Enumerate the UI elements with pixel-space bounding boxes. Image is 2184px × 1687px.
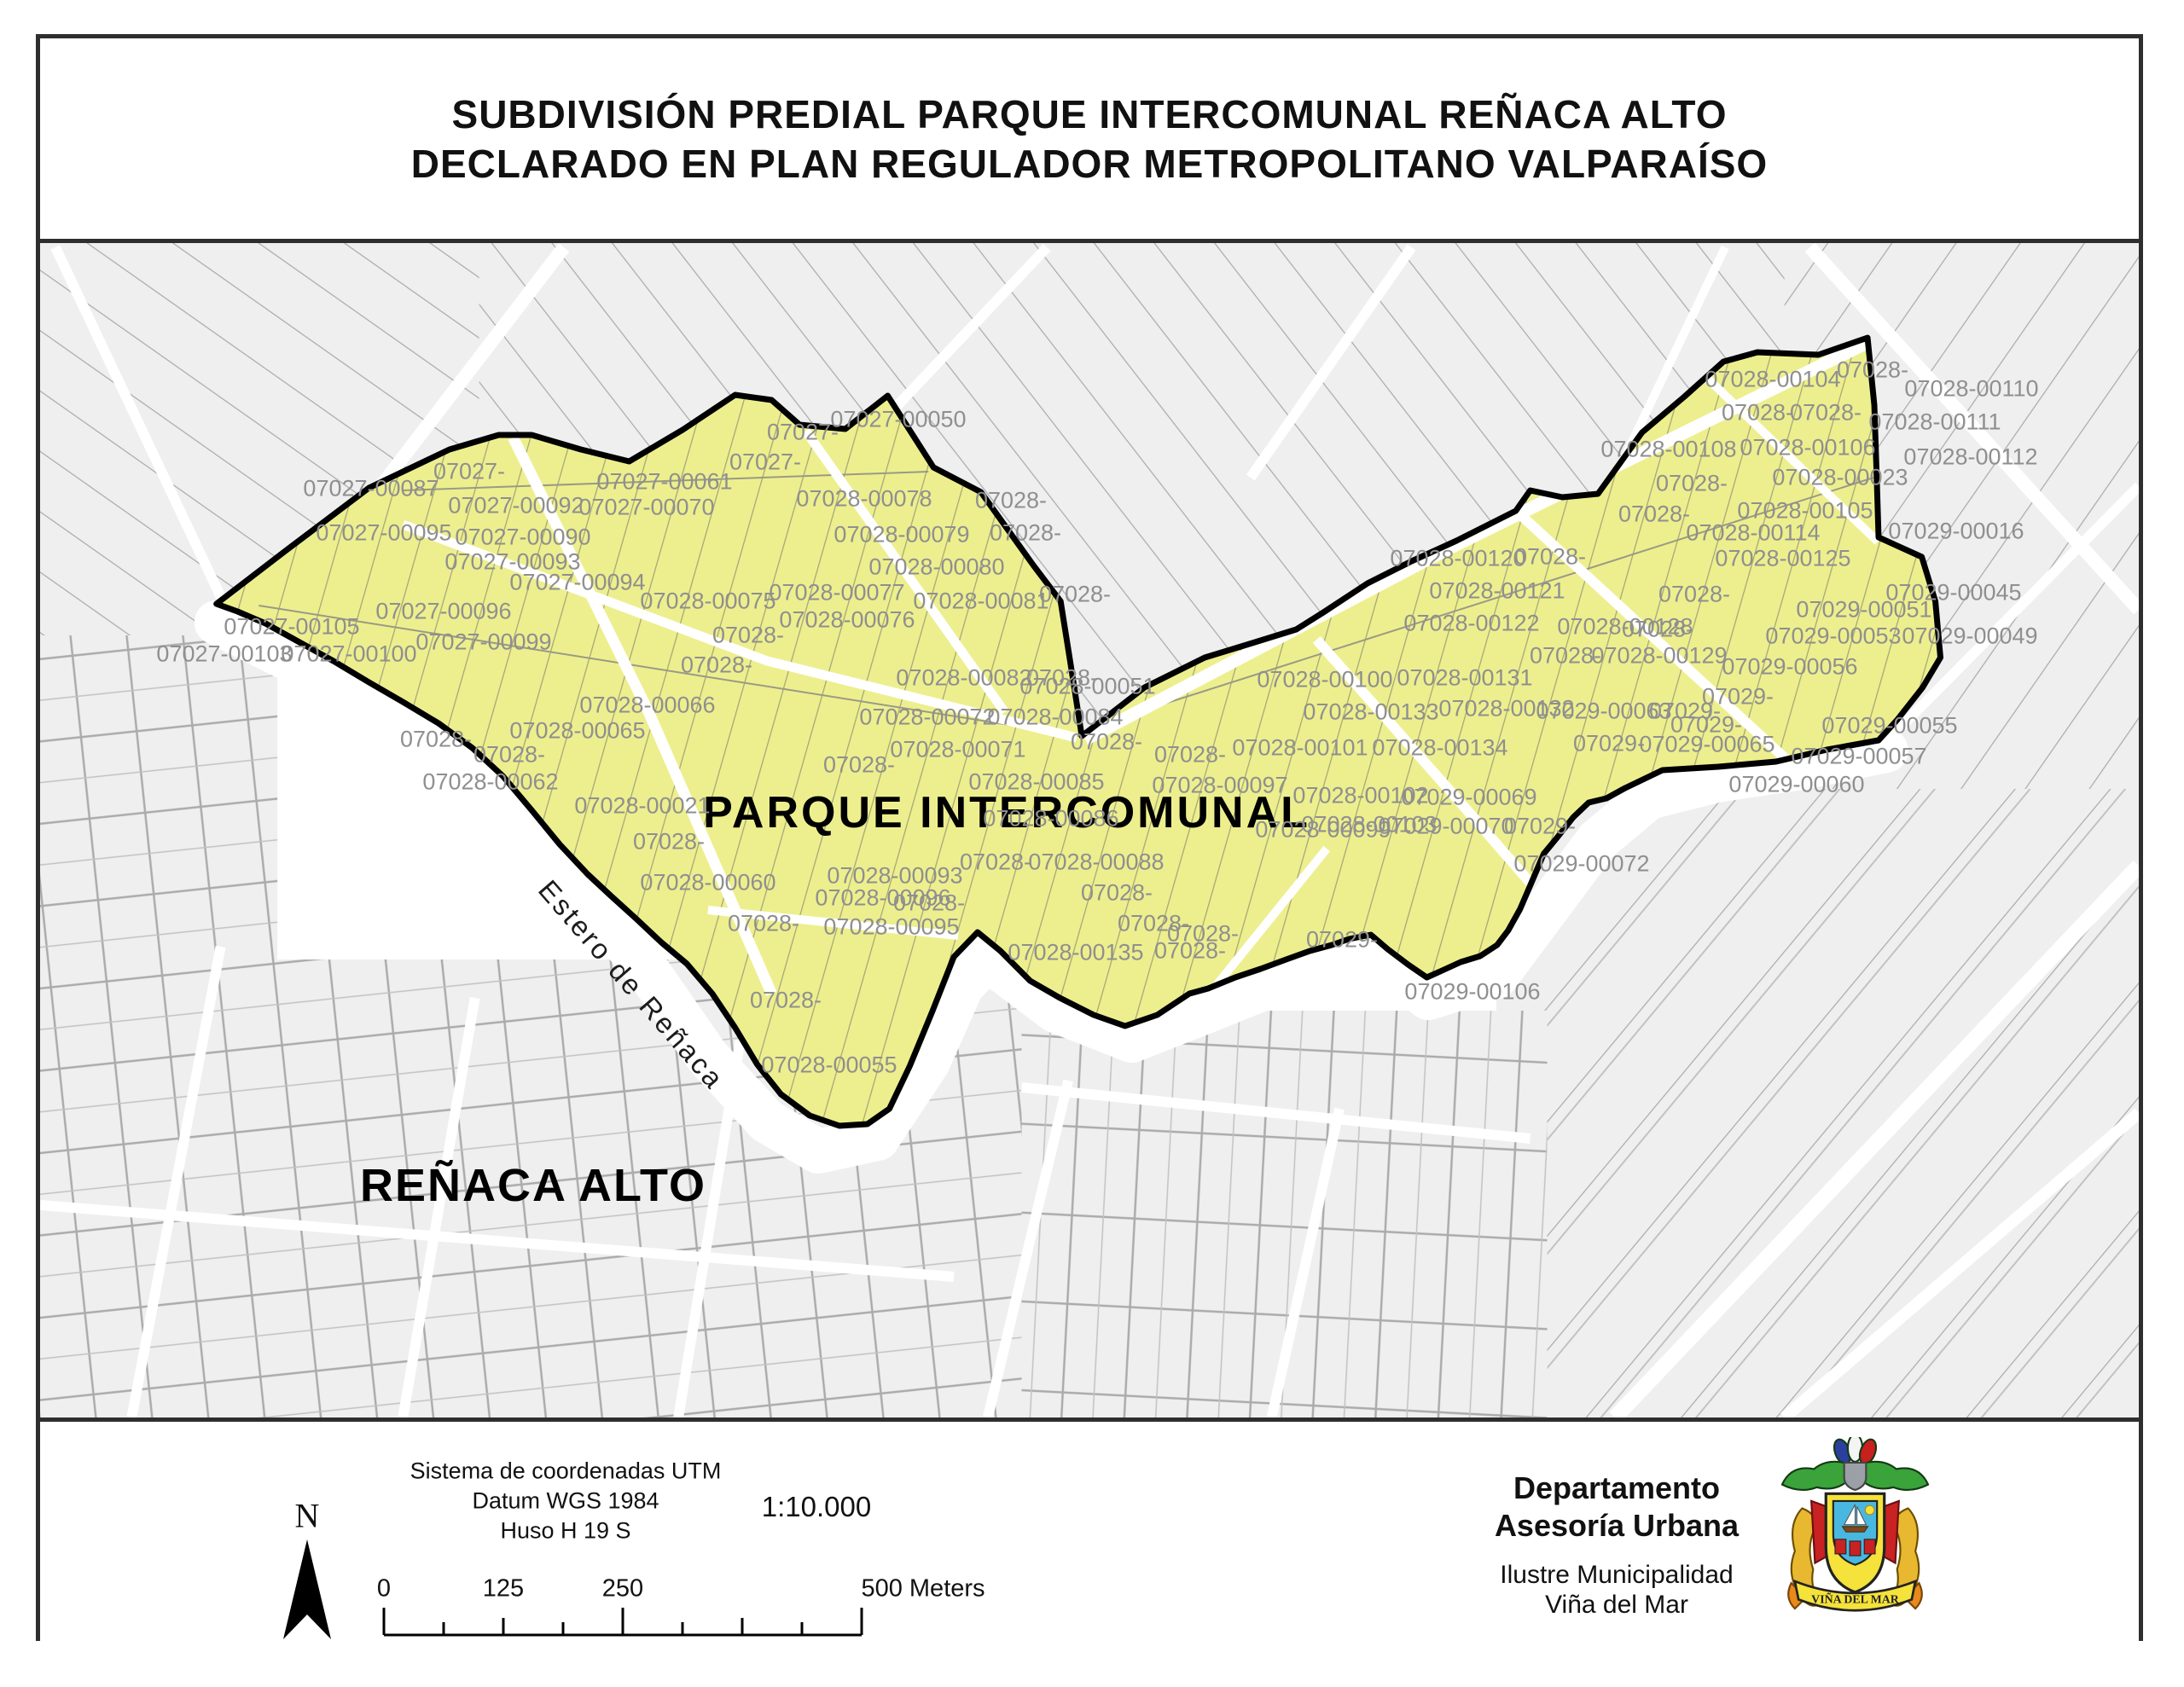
municipality-line1: Ilustre Municipalidad — [1500, 1561, 1733, 1590]
parcel-label: 07028-00084 — [987, 704, 1123, 731]
parcel-label: 07027-00092 — [448, 493, 584, 519]
parcel-label: 07028- — [681, 652, 752, 679]
parcel-label: 07029-00053 — [1765, 623, 1901, 650]
parcel-label: 07027-00105 — [224, 614, 359, 641]
parcel-label: 07029-00016 — [1888, 519, 2024, 545]
parcel-label: 07028- — [1790, 400, 1862, 426]
parcel-label: 07028-00111 — [1868, 409, 2001, 436]
parcel-label: 07028- — [823, 752, 895, 779]
parcel-label: 07028- — [1658, 582, 1730, 608]
department-line1: Departamento — [1513, 1470, 1720, 1506]
parcel-label: 07029- — [1573, 731, 1645, 757]
parcel-label: 07029- — [1504, 814, 1576, 840]
map-sheet: SUBDIVISIÓN PREDIAL PARQUE INTERCOMUNAL … — [36, 34, 2143, 1641]
parcel-label: 07028-00097 — [1152, 773, 1287, 799]
parcel-label: 07029-00049 — [1902, 623, 2037, 650]
parcel-labels-layer: PARQUE INTERCOMUNAL REÑACA ALTO Estero d… — [40, 243, 2139, 1417]
crs-line-3: Huso H 19 S — [500, 1518, 630, 1545]
parcel-label: 07027- — [767, 420, 839, 446]
parcel-label: 07027-00099 — [415, 629, 551, 656]
parcel-label: 07029-00045 — [1885, 580, 2021, 606]
parcel-label: 07028- — [975, 488, 1047, 514]
parcel-label: 07028-00108 — [1600, 437, 1736, 463]
parcel-label: 07028-00095 — [823, 914, 959, 941]
scale-tick-500: 500 Meters — [861, 1575, 985, 1603]
parcel-label: 07028- — [893, 890, 965, 917]
parcel-label: 07027- — [433, 459, 505, 485]
parcel-label: 07028- — [1530, 643, 1601, 670]
parcel-label: 07028-00051 — [1019, 674, 1155, 700]
map-title-line1: SUBDIVISIÓN PREDIAL PARQUE INTERCOMUNAL … — [452, 90, 1728, 139]
crs-line-1: Sistema de coordenadas UTM — [410, 1458, 722, 1485]
parcel-label: 07027-00095 — [316, 520, 451, 547]
department-line2: Asesoría Urbana — [1495, 1508, 1739, 1544]
parcel-label: 07028- — [1071, 729, 1142, 756]
parcel-label: 07028-00120 — [1390, 546, 1525, 572]
parcel-label: 07028- — [633, 829, 705, 855]
parcel-label: 07028-00122 — [1403, 611, 1539, 637]
crest-banner-text: VIÑA DEL MAR — [1811, 1591, 1900, 1607]
parcel-label: 07029-00072 — [1513, 851, 1649, 878]
map-title-line2: DECLARADO EN PLAN REGULADOR METROPOLITAN… — [411, 139, 1768, 188]
parcel-label: 07028- — [473, 742, 545, 768]
scale-tick-0: 0 — [377, 1575, 391, 1603]
parcel-label: 07028-00065 — [509, 718, 645, 745]
parcel-label: 07028- — [990, 520, 1061, 547]
parcel-label: 07028- — [750, 988, 822, 1014]
parcel-label: 07028- — [1154, 742, 1226, 768]
parcel-label: 07028-00093 — [827, 863, 962, 890]
district-name-label: REÑACA ALTO — [360, 1159, 706, 1212]
scale-bar — [384, 1608, 862, 1635]
parcel-label: 07028-00125 — [1715, 546, 1850, 572]
crs-line-2: Datum WGS 1984 — [472, 1488, 659, 1515]
parcel-label: 07028-00129 — [1591, 643, 1727, 670]
parcel-label: 07028- — [1837, 357, 1908, 384]
parcel-label: 07028-00076 — [779, 607, 915, 634]
parcel-label: 07028- — [1618, 501, 1690, 528]
parcel-label: 07028-00055 — [761, 1052, 897, 1079]
parcel-label: 07028-00135 — [1008, 940, 1143, 966]
parcel-label: 07027-00087 — [303, 476, 439, 502]
parcel-label: 07029-00055 — [1821, 713, 1957, 739]
parcel-label: 07028-00106 — [1740, 435, 1875, 461]
parcel-label: 07028-00101 — [1232, 735, 1368, 762]
parcel-label: 07029- — [1702, 684, 1774, 710]
north-letter: N — [295, 1496, 320, 1536]
parcel-label: 07028-00134 — [1372, 735, 1507, 762]
parcel-label: 07028-00021 — [574, 793, 710, 820]
municipal-crest-icon: VIÑA DEL MAR — [1763, 1437, 1947, 1633]
parcel-label: 07029-00069 — [1401, 785, 1536, 811]
municipality-line2: Viña del Mar — [1545, 1591, 1688, 1620]
scale-ratio: 1:10.000 — [762, 1491, 871, 1523]
parcel-label: 07028-00062 — [422, 769, 558, 796]
legend-block: N Sistema de coordenadas UTM Datum WGS 1… — [40, 1417, 2139, 1645]
parcel-label: 07028- — [400, 727, 472, 753]
parcel-label: 07027-00070 — [578, 495, 714, 521]
parcel-label: 07028-00078 — [796, 486, 932, 513]
parcel-label: 07028-00110 — [1904, 376, 2038, 403]
parcel-label: 07028-00072 — [859, 704, 995, 731]
parcel-label: 07027-00094 — [509, 570, 645, 596]
parcel-label: 07028-00082 — [896, 665, 1031, 692]
parcel-label: 07028- — [1039, 582, 1111, 608]
parcel-label: 07029-00106 — [1404, 979, 1540, 1006]
parcel-label: 07028-00023 — [1772, 465, 1908, 491]
parcel-label: 07028- — [1081, 880, 1153, 907]
map-canvas: PARQUE INTERCOMUNAL REÑACA ALTO Estero d… — [40, 243, 2139, 1417]
parcel-label: 07028-00133 — [1303, 699, 1438, 726]
parcel-label: 07027-00050 — [830, 407, 966, 433]
parcel-label: 07028- — [712, 623, 784, 649]
parcel-label: 07027-00061 — [596, 469, 732, 496]
north-arrow-icon — [283, 1539, 331, 1639]
parcel-label: 07028-00071 — [890, 737, 1025, 763]
scale-tick-250: 250 — [602, 1575, 643, 1603]
parcel-label: 07027-00096 — [375, 599, 511, 625]
parcel-label: 07029-00060 — [1728, 772, 1864, 798]
parcel-label: 07028-00100 — [1257, 667, 1392, 693]
parcel-label: 07028-00086 — [983, 806, 1118, 832]
parcel-label: 07028-00099 — [1255, 817, 1391, 843]
parcel-label: 07029-00057 — [1791, 744, 1926, 770]
scale-tick-125: 125 — [483, 1575, 524, 1603]
parcel-label: 07029-00070 — [1378, 814, 1513, 840]
parcel-label: 07028- — [728, 911, 799, 937]
parcel-label: 07028- — [1167, 921, 1239, 948]
parcel-label: 07029- — [1306, 927, 1378, 954]
parcel-label: 07028-00131 — [1397, 665, 1532, 692]
page-root: { "title": { "line1": "SUBDIVISIÓN PREDI… — [0, 0, 2184, 1687]
parcel-label: 07028-00075 — [640, 588, 775, 615]
parcel-label: 07028-00114 — [1686, 520, 1820, 547]
parcel-label: 07028-00060 — [640, 870, 775, 896]
parcel-label: 07028-00079 — [834, 522, 969, 548]
parcel-label: 07028-00088 — [1028, 849, 1164, 876]
parcel-label: 07028- — [960, 849, 1031, 876]
parcel-label: 07028- — [1622, 617, 1693, 643]
parcel-label: 07028-00066 — [579, 693, 715, 719]
parcel-label: 07028-00081 — [913, 588, 1048, 615]
title-block: SUBDIVISIÓN PREDIAL PARQUE INTERCOMUNAL … — [40, 38, 2139, 243]
parcel-label: 07029- — [1670, 712, 1742, 739]
parcel-label: 07028-00080 — [868, 554, 1004, 581]
parcel-label: 07028- — [1656, 471, 1728, 497]
parcel-label: 07028-00085 — [968, 769, 1104, 796]
parcel-label: 07028-00077 — [769, 580, 904, 606]
parcel-label: 07027-00090 — [455, 525, 590, 551]
parcel-label: 07028-00121 — [1429, 578, 1565, 605]
parcel-label: 07028-00112 — [1903, 444, 2037, 471]
parcel-label: 07029-00056 — [1722, 654, 1857, 681]
parcel-label: 07028- — [1722, 400, 1793, 426]
stream-name-label: Estero de Reñaca — [531, 874, 730, 1097]
parcel-label: 07027-00100 — [281, 641, 416, 668]
parcel-label: 07028-00104 — [1705, 367, 1840, 393]
parcel-label: 07028- — [1514, 544, 1586, 571]
parcel-label: 07027-00103 — [156, 641, 292, 668]
parcel-label: 07027- — [729, 449, 801, 476]
